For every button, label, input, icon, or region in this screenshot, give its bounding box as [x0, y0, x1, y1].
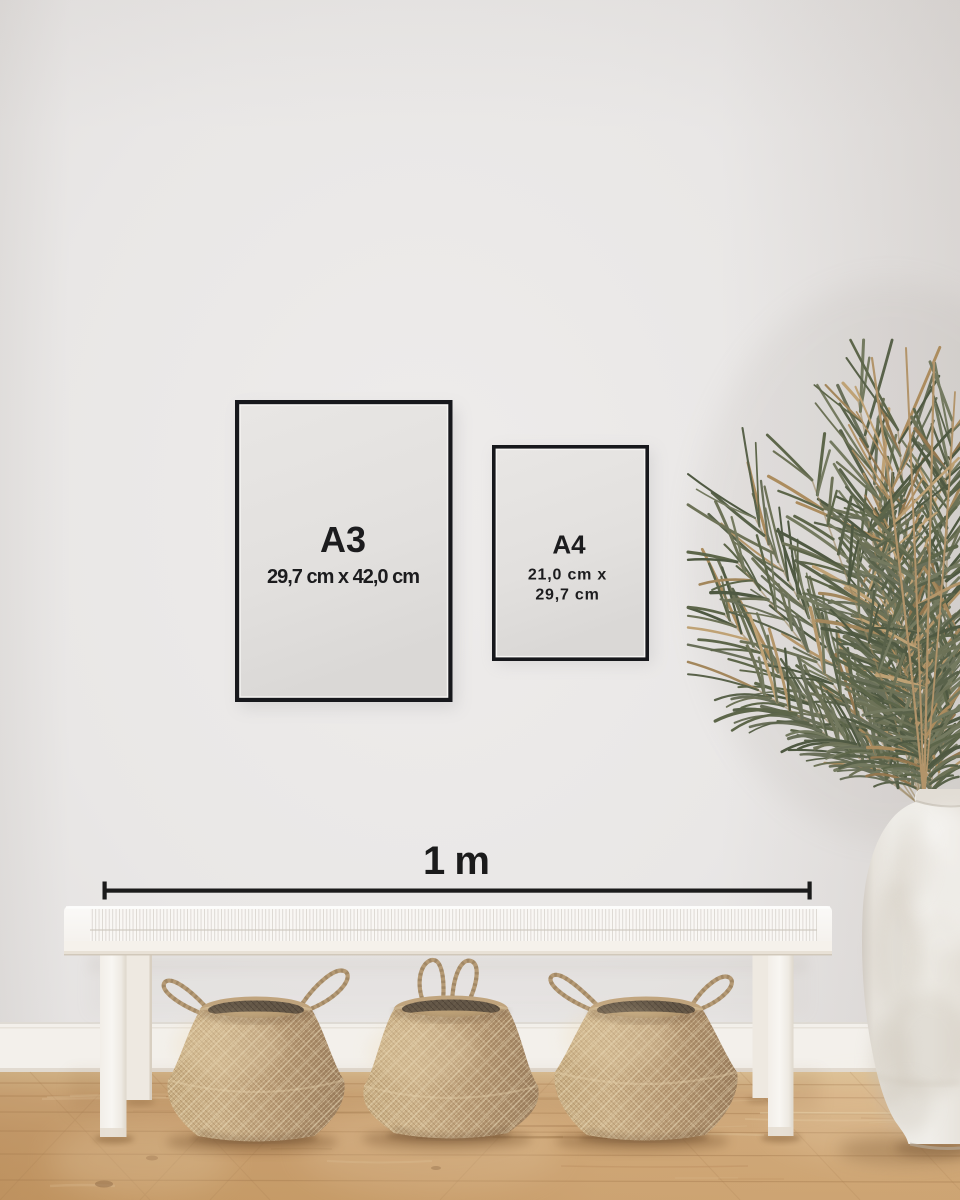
svg-text:29,7 cm: 29,7 cm: [535, 587, 599, 604]
svg-text:29,7 cm x 42,0 cm: 29,7 cm x 42,0 cm: [267, 566, 419, 588]
svg-text:A4: A4: [552, 530, 586, 560]
svg-text:1 m: 1 m: [423, 839, 489, 883]
svg-text:21,0 cm x: 21,0 cm x: [528, 567, 607, 584]
svg-text:A3: A3: [320, 519, 366, 560]
